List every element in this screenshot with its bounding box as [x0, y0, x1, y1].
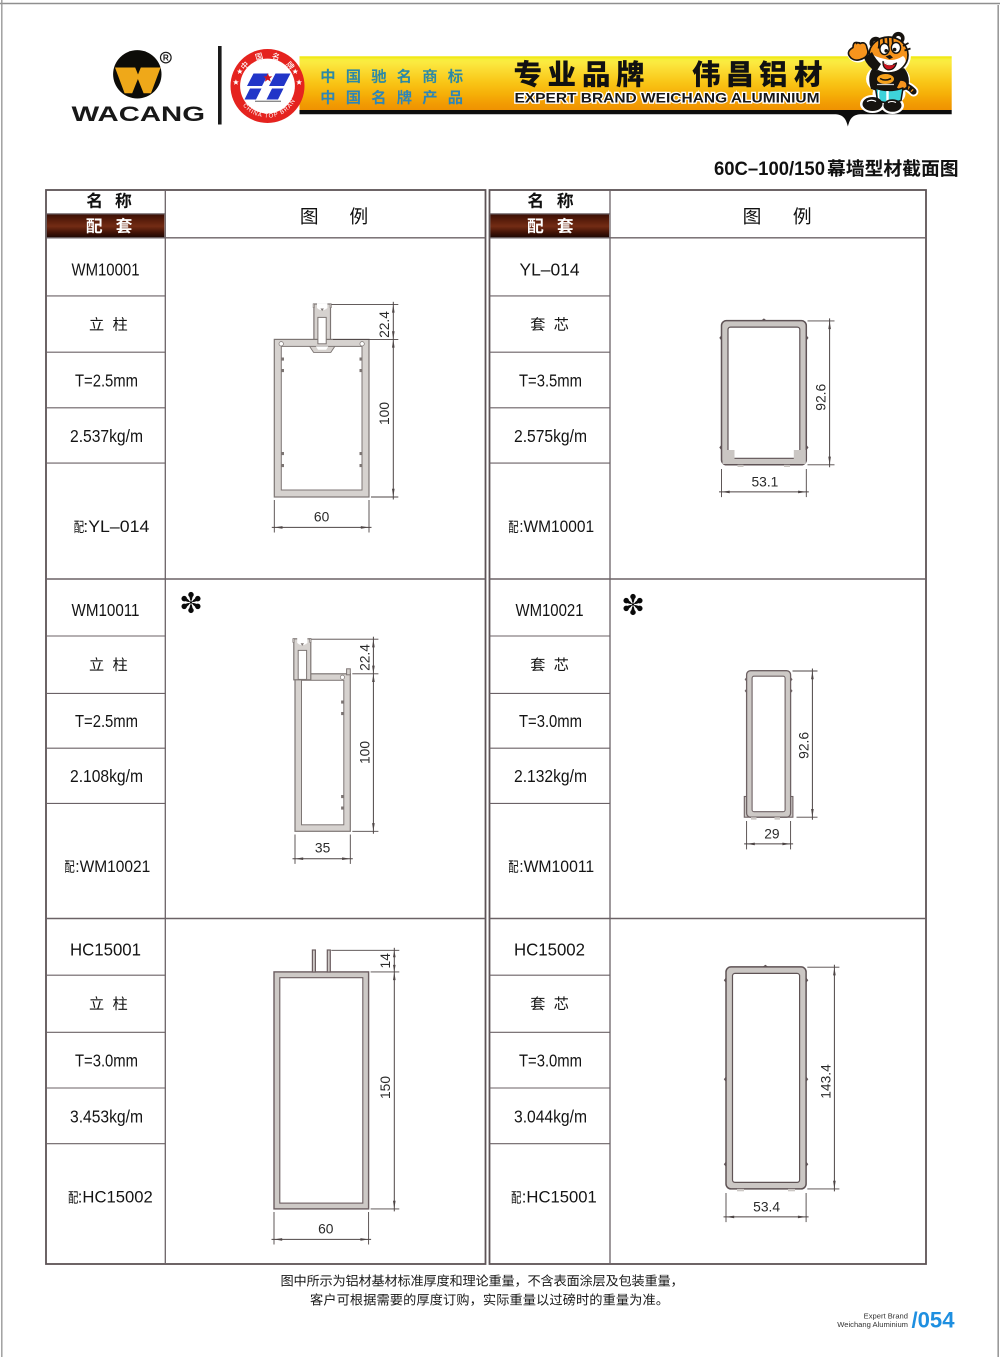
- svg-text:2.108kg/m: 2.108kg/m: [70, 766, 143, 786]
- svg-text::HC15002: :HC15002: [78, 1188, 153, 1207]
- svg-text:150: 150: [378, 1076, 393, 1099]
- svg-text:WM10001: WM10001: [72, 259, 140, 279]
- svg-text:Expert Brand: Expert Brand: [864, 1312, 908, 1321]
- svg-text:2.132kg/m: 2.132kg/m: [514, 766, 587, 786]
- svg-text:60: 60: [318, 1221, 334, 1236]
- svg-text::WM10021: :WM10021: [75, 857, 150, 876]
- svg-text:EXPERT BRAND WEICHANG ALUMINIU: EXPERT BRAND WEICHANG ALUMINIUM: [515, 91, 820, 106]
- svg-text:14: 14: [378, 953, 393, 969]
- svg-text:60C–100/150: 60C–100/150: [714, 159, 825, 180]
- svg-text:92.6: 92.6: [814, 384, 829, 411]
- svg-text:60: 60: [314, 509, 330, 524]
- svg-text:2.575kg/m: 2.575kg/m: [514, 426, 587, 446]
- svg-text:35: 35: [315, 841, 331, 856]
- svg-text:143.4: 143.4: [818, 1064, 833, 1099]
- svg-text:WM10021: WM10021: [516, 600, 584, 620]
- svg-text:T=3.0mm: T=3.0mm: [75, 1051, 138, 1071]
- svg-text:WM10011: WM10011: [72, 600, 140, 620]
- svg-text:100: 100: [357, 741, 372, 764]
- svg-text:2.537kg/m: 2.537kg/m: [70, 426, 143, 446]
- svg-text:3.044kg/m: 3.044kg/m: [514, 1106, 587, 1126]
- svg-text:22.4: 22.4: [377, 311, 392, 338]
- svg-text:Weichang Aluminium: Weichang Aluminium: [837, 1320, 908, 1329]
- svg-text:3.453kg/m: 3.453kg/m: [70, 1106, 143, 1126]
- svg-text::HC15001: :HC15001: [522, 1188, 597, 1207]
- svg-text:/054: /054: [912, 1308, 955, 1333]
- svg-text:92.6: 92.6: [796, 732, 811, 759]
- svg-text:T=2.5mm: T=2.5mm: [75, 371, 138, 391]
- svg-text:WACANG: WACANG: [72, 102, 206, 126]
- svg-text:53.4: 53.4: [753, 1200, 780, 1215]
- svg-text::YL–014: :YL–014: [83, 517, 149, 536]
- svg-text:YL–014: YL–014: [520, 259, 580, 279]
- svg-text:T=3.0mm: T=3.0mm: [519, 711, 582, 731]
- svg-text::WM10011: :WM10011: [519, 857, 594, 876]
- svg-text:29: 29: [764, 827, 780, 842]
- svg-text:HC15001: HC15001: [70, 939, 141, 959]
- svg-text:T=3.5mm: T=3.5mm: [519, 371, 582, 391]
- svg-text:100: 100: [377, 402, 392, 425]
- svg-text:22.4: 22.4: [357, 644, 372, 671]
- svg-text:T=3.0mm: T=3.0mm: [519, 1051, 582, 1071]
- svg-text::WM10001: :WM10001: [519, 517, 594, 536]
- svg-text:HC15002: HC15002: [514, 939, 585, 959]
- svg-text:53.1: 53.1: [751, 475, 778, 490]
- svg-text:R: R: [163, 54, 169, 63]
- svg-text:T=2.5mm: T=2.5mm: [75, 711, 138, 731]
